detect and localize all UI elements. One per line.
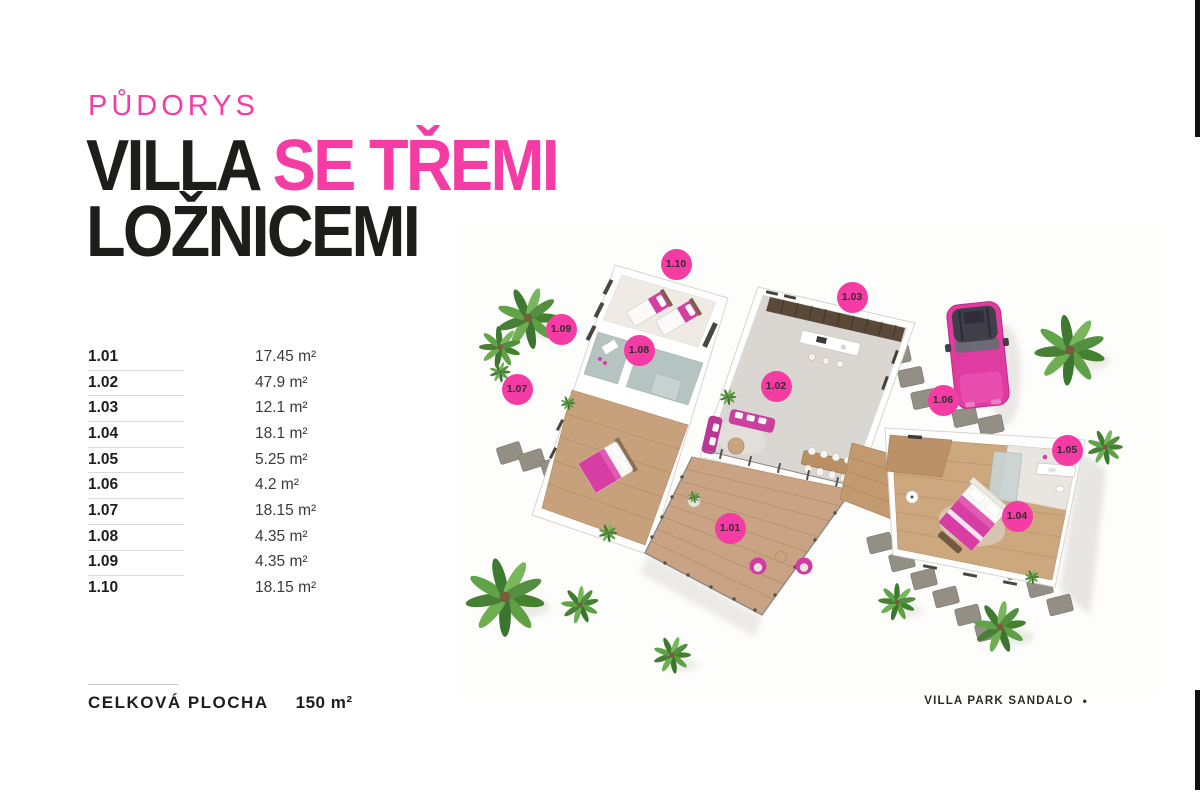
room-area: 5.25 m² — [255, 451, 308, 469]
room-row: 1.0718.15 m² — [88, 498, 368, 524]
page-edge-bar-bottom — [1195, 690, 1200, 790]
room-list: 1.0117.45 m² 1.0247.9 m² 1.0312.1 m² 1.0… — [88, 344, 368, 601]
room-row: 1.1018.15 m² — [88, 575, 368, 601]
room-area: 18.15 m² — [255, 579, 316, 597]
room-row: 1.094.35 m² — [88, 550, 368, 576]
brand-bullet-icon: • — [1083, 695, 1088, 707]
room-id: 1.07 — [88, 502, 255, 520]
plan-marker-1-08: 1.08 — [624, 335, 655, 366]
brochure-page: PŮDORYS VILLA SE TŘEMI LOŽNICEMI 1.0117.… — [0, 0, 1200, 800]
total-area-summary: CELKOVÁ PLOCHA 150 m² — [88, 684, 353, 713]
room-id: 1.03 — [88, 399, 255, 417]
room-area: 17.45 m² — [255, 348, 316, 366]
room-area: 4.35 m² — [255, 528, 308, 546]
coffee-table — [728, 438, 744, 454]
brand-name: VILLA PARK SANDALO — [924, 695, 1073, 707]
room-row: 1.0247.9 m² — [88, 370, 368, 396]
plan-marker-1-09: 1.09 — [546, 314, 577, 345]
title-line-1: VILLA SE TŘEMI — [86, 133, 557, 199]
room-row: 1.064.2 m² — [88, 472, 368, 498]
summary-divider — [88, 684, 178, 685]
plan-marker-1-07: 1.07 — [502, 374, 533, 405]
room-id: 1.02 — [88, 374, 255, 392]
room-area: 47.9 m² — [255, 374, 308, 392]
eyebrow-label: PŮDORYS — [88, 90, 259, 123]
room-area: 4.35 m² — [255, 553, 308, 571]
room-area: 12.1 m² — [255, 399, 308, 417]
room-id: 1.08 — [88, 528, 255, 546]
room-id: 1.10 — [88, 579, 255, 597]
room-row: 1.0418.1 m² — [88, 421, 368, 447]
room-id: 1.09 — [88, 553, 255, 571]
plan-marker-1-02: 1.02 — [761, 371, 792, 402]
plan-marker-1-10: 1.10 — [661, 249, 692, 280]
room-id: 1.04 — [88, 425, 255, 443]
plan-marker-1-04: 1.04 — [1002, 501, 1033, 532]
room-row: 1.055.25 m² — [88, 447, 368, 473]
plan-marker-1-01: 1.01 — [715, 513, 746, 544]
room-area: 4.2 m² — [255, 476, 299, 494]
room-id: 1.01 — [88, 348, 255, 366]
total-area-label: CELKOVÁ PLOCHA — [88, 693, 269, 713]
room-id: 1.06 — [88, 476, 255, 494]
room-row: 1.0117.45 m² — [88, 344, 368, 370]
plan-marker-1-06: 1.06 — [928, 385, 959, 416]
room-row: 1.0312.1 m² — [88, 395, 368, 421]
floor-plan-area: 1.01 1.02 1.03 1.04 1.05 1.06 1.07 1.08 … — [460, 225, 1160, 695]
room-area: 18.1 m² — [255, 425, 308, 443]
plan-marker-1-05: 1.05 — [1052, 435, 1083, 466]
room-area: 18.15 m² — [255, 502, 316, 520]
total-area-value: 150 m² — [296, 693, 353, 713]
page-edge-bar-top — [1195, 0, 1200, 137]
deck-table — [776, 552, 787, 563]
brand-footer: VILLA PARK SANDALO • — [924, 695, 1088, 707]
room-id: 1.05 — [88, 451, 255, 469]
room-row: 1.084.35 m² — [88, 524, 368, 550]
plan-marker-1-03: 1.03 — [837, 282, 868, 313]
